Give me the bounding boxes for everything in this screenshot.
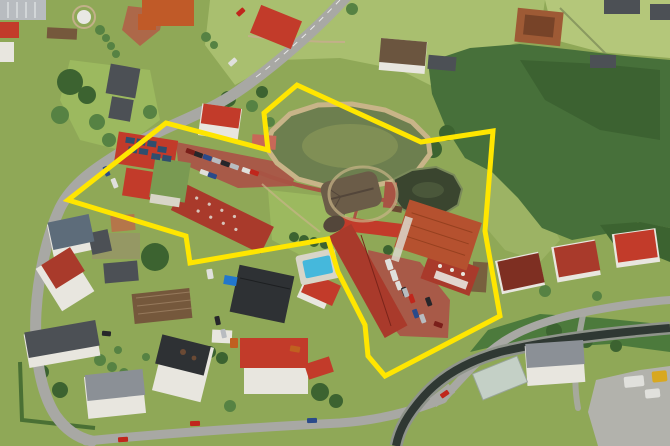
orange-building-wing	[138, 14, 156, 30]
tree	[201, 32, 211, 42]
house-roof	[604, 0, 640, 14]
roof-hole	[192, 356, 197, 361]
car	[307, 418, 317, 423]
orange-machine	[230, 338, 238, 348]
tree	[52, 382, 68, 398]
car	[190, 421, 200, 426]
brick-house-interior	[523, 14, 555, 37]
tree	[224, 400, 236, 412]
car	[102, 331, 111, 337]
house-roof	[0, 22, 19, 38]
conifer	[383, 245, 393, 255]
soil-plot	[47, 27, 78, 40]
hedge-bush	[102, 34, 110, 42]
pond-glint	[302, 124, 398, 168]
tree	[210, 41, 218, 49]
house-roof-brown	[379, 38, 427, 66]
excavator	[652, 370, 668, 383]
aerial-photo	[0, 0, 670, 446]
tree	[51, 106, 69, 124]
tree	[610, 340, 622, 352]
tree	[141, 243, 169, 271]
dormer	[461, 272, 465, 276]
striped-parking	[0, 0, 46, 20]
tree	[89, 114, 105, 130]
tree	[78, 86, 96, 104]
tree	[539, 285, 551, 297]
wall	[0, 42, 14, 62]
brick-house	[514, 8, 563, 47]
hedge-bush	[112, 50, 120, 58]
house-roof	[614, 229, 658, 262]
garden-bush	[142, 353, 150, 361]
tree	[216, 352, 228, 364]
house-roof	[103, 261, 139, 284]
truck	[645, 388, 661, 399]
house-roof	[650, 4, 670, 20]
tree	[256, 86, 268, 98]
tree	[329, 394, 343, 408]
round-gazebo	[77, 10, 91, 24]
hedge-bush	[95, 25, 105, 35]
conifer	[289, 232, 299, 242]
garage-roof	[427, 55, 456, 71]
tree	[102, 133, 116, 147]
house-roof	[108, 96, 133, 121]
shed-roof	[590, 55, 616, 68]
tree	[311, 383, 329, 401]
truck	[624, 375, 645, 388]
garden-bush	[114, 346, 122, 354]
tree	[143, 105, 157, 119]
hedge-bush	[107, 42, 115, 50]
tree	[346, 3, 358, 15]
car	[118, 437, 128, 443]
roof-hole	[180, 349, 186, 355]
tree	[592, 291, 602, 301]
garden-bush	[107, 362, 117, 372]
second-pond-glint	[412, 182, 444, 198]
tree	[246, 100, 258, 112]
aerial-photo-canvas	[0, 0, 670, 446]
dormer	[450, 268, 454, 272]
dormer	[438, 264, 442, 268]
house-roof	[240, 338, 308, 368]
house-roof	[525, 340, 585, 368]
barn-roof	[106, 64, 141, 99]
